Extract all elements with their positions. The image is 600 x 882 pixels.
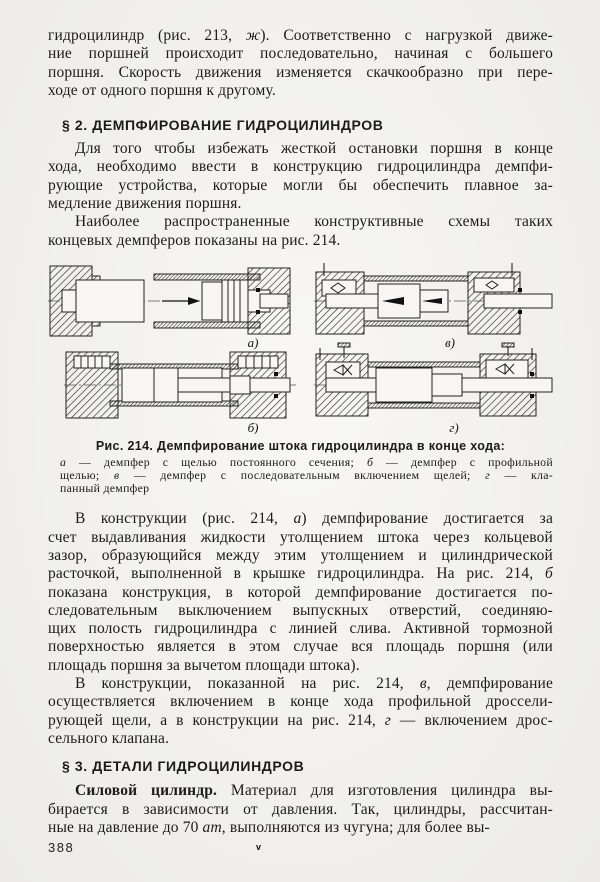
paragraph-construction-a-b: В конструкции (рис. 214, а) демпфировани… (48, 510, 553, 675)
text-line: следовательным выключением выпускных отв… (48, 602, 553, 620)
text-line: поверхностью является в этом случае вся … (48, 638, 553, 656)
diagram-label-b: б) (248, 420, 259, 434)
paragraph-damping-1: Для того чтобы избежать жесткой остановк… (48, 140, 553, 213)
text-line: рующие устройства, которые могли бы обес… (48, 177, 553, 195)
text-line: концевых демпферов показаны на рис. 214. (48, 232, 553, 250)
section-heading-2: § 2. ДЕМПФИРОВАНИЕ ГИДРОЦИЛИНДРОВ (62, 117, 553, 133)
diagram-a-constant-slot (48, 266, 290, 336)
diagram-label-g: г) (449, 420, 458, 434)
diagram-g-valve-damper (314, 343, 553, 416)
page-footer: 388 v (0, 840, 600, 860)
text-line: бирается в зависимости от давления. Так,… (48, 801, 553, 819)
text-line: площадь поршня за вычетом площади штока)… (48, 657, 553, 675)
text-line: поршня. Скорость движения изменяется ска… (48, 64, 553, 82)
text-line: панный демпфер (60, 482, 553, 495)
text-line: щелью; в — демпфер с последовательным вк… (60, 469, 553, 482)
text-line: рующей щели, а в конструкции на рис. 214… (48, 712, 553, 730)
paragraph-damping-2: Наиболее распространенные конструктивные… (48, 213, 553, 250)
text-line: а — демпфер с щелью постоянного сечения;… (60, 456, 553, 469)
text-line: зазор, образующийся между этим утолщение… (48, 547, 553, 565)
section-heading-3: § 3. ДЕТАЛИ ГИДРОЦИЛИНДРОВ (62, 758, 553, 774)
text-line: показана конструкция, в которой демпфиро… (48, 584, 553, 602)
text-line: ные на давление до 70 ат, выполняются из… (48, 819, 553, 837)
diagram-label-v: в) (445, 335, 455, 350)
text-line: расточкой, выполненной в крышке гидроцил… (48, 565, 553, 583)
text-line: Наиболее распространенные конструктивные… (48, 213, 553, 231)
text-line: ние поршней происходит последовательно, … (48, 45, 553, 63)
text-line: ходе от одного поршня к другому. (48, 82, 553, 100)
text-line: Для того чтобы избежать жесткой остановк… (48, 140, 553, 158)
diagram-label-a: а) (248, 335, 259, 350)
text-line: гидроцилиндр (рис. 213, ж). Соответствен… (48, 27, 553, 45)
figure-caption-title: Рис. 214. Демпфирование штока гидроцилин… (48, 438, 553, 454)
diagram-b-profiled-slot (64, 352, 296, 418)
paragraph-construction-v-g: В конструкции, показанной на рис. 214, в… (48, 675, 553, 748)
figure-caption: Рис. 214. Демпфирование штока гидроцилин… (48, 438, 553, 494)
text-line: счет выдавливания жидкости утолщением шт… (48, 529, 553, 547)
figure-214: а) в) б) г) Рис. 214. Демпфирование шток… (48, 262, 553, 494)
paragraph-power-cylinder: Силовой цилиндр. Материал для изготовлен… (48, 782, 553, 837)
text-line: В конструкции (рис. 214, а) демпфировани… (48, 510, 553, 528)
text-line: сельного клапана. (48, 730, 553, 748)
book-page: гидроцилиндр (рис. 213, ж). Соответствен… (0, 0, 600, 882)
figure-caption-legend: а — демпфер с щелью постоянного сечения;… (60, 456, 553, 494)
paragraph-intro: гидроцилиндр (рис. 213, ж). Соответствен… (48, 27, 553, 100)
printer-mark: v (256, 842, 261, 852)
text-line: осуществляется включением в конце хода п… (48, 693, 553, 711)
diagram-v-sequential-slots (314, 263, 553, 334)
page-number: 388 (48, 840, 74, 855)
text-line: Силовой цилиндр. Материал для изготовлен… (48, 782, 553, 800)
text-line: медление движения поршня. (48, 195, 553, 213)
text-line: щих полость гидроцилиндра с линией слива… (48, 620, 553, 638)
figure-214-drawing: а) в) б) г) (48, 262, 553, 434)
text-line: В конструкции, показанной на рис. 214, в… (48, 675, 553, 693)
text-line: хода, необходимо ввести в конструкцию ги… (48, 158, 553, 176)
